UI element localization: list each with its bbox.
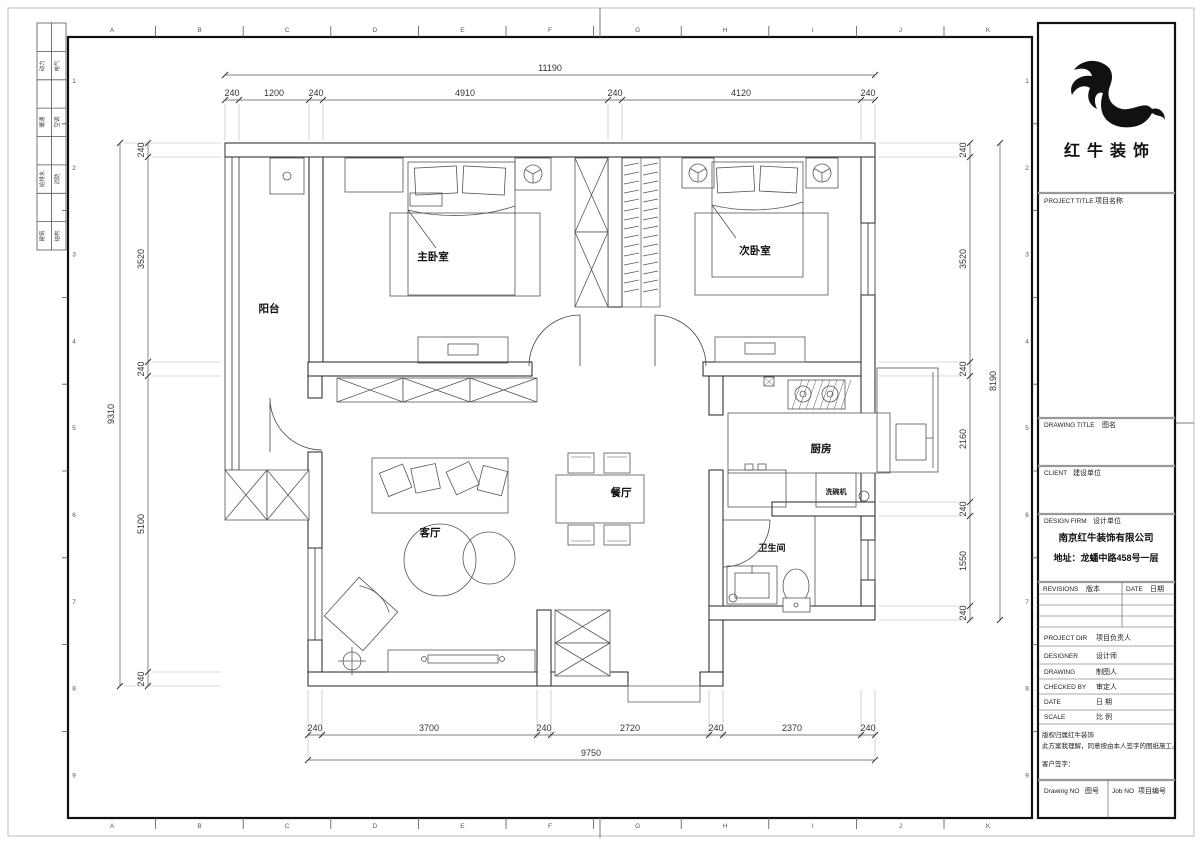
grid-label: C [285,27,290,34]
dim-label: 240 [958,501,968,516]
toilet-tank [783,598,810,612]
dim-label: 240 [308,88,323,98]
dim-label: 1550 [958,551,968,571]
scale-label: SCALE [1044,714,1066,721]
signoff-label: 电气 [53,60,61,72]
project-dir-cn: 项目负责人 [1096,633,1131,642]
dim-right-total: 8190 [988,371,998,391]
grid-label: A [110,823,115,830]
second-bedroom-label: 次卧室 [739,244,771,257]
date-row-label: DATE [1044,699,1062,706]
dim-label: 240 [136,361,146,376]
signoff-label: 动力 [38,60,46,71]
dim-label: 1200 [264,88,284,98]
drawing-title-label: DRAWING TITLE [1044,422,1095,429]
dim-label: 2160 [958,429,968,449]
project-dir-label: PROJECT DIR [1044,635,1088,642]
living-room-label: 客厅 [419,526,441,539]
dining-room-label: 餐厅 [610,486,632,499]
dim-label: 240 [958,605,968,620]
dim-label: 240 [224,88,239,98]
grid-label: 6 [1025,512,1029,519]
grid-label: 5 [1025,425,1029,432]
dim-label: 4910 [455,88,475,98]
grid-label: 8 [72,686,76,693]
grid-label: 1 [72,78,76,85]
dishwasher-label: 洗碗机 [826,487,847,496]
design-firm-cn: 设计单位 [1093,516,1121,525]
dining-table [556,475,644,523]
firm-address: 地址：龙蟠中路458号一层 [1053,552,1158,563]
checked-by-label: CHECKED BY [1044,684,1087,691]
grid-label: 2 [72,165,76,172]
checked-by-cn: 审定人 [1096,682,1117,691]
grid-label: H [723,27,728,34]
grid-label: K [986,27,991,34]
drawing-no-label: Drawing NO [1044,788,1079,795]
grid-label: 7 [72,599,76,606]
sheet-outer-border [8,8,1194,836]
dim-label: 240 [958,142,968,157]
date-label: DATE [1126,586,1144,593]
dim-label: 5100 [136,514,146,534]
grid-label: B [197,823,201,830]
grid-label: J [899,823,902,830]
signoff-label: 建筑 [38,230,46,242]
dim-label: 240 [860,723,875,733]
dim-label: 2720 [620,723,640,733]
grid-label: C [285,823,290,830]
grid-label: I [812,823,814,830]
copyright-note: 版权归属红牛装饰 [1042,730,1095,739]
title-block: 红牛装饰 PROJECT TITLE 项目名称 DRAWING TITLE 图名… [1038,23,1179,818]
dim-bottom-total: 9750 [581,748,601,758]
grid-label: 1 [1025,78,1029,85]
drawing-sheet: ABCDEFGHIJK ABCDEFGHIJK 123456789 123456… [0,0,1200,844]
grid-label: 3 [1025,252,1029,259]
dim-label: 3700 [419,723,439,733]
grid-label: J [899,27,902,34]
drawing-by-label: DRAWING [1044,669,1075,676]
floor-plan-svg: ABCDEFGHIJK ABCDEFGHIJK 123456789 123456… [0,0,1200,844]
chair [604,525,630,545]
revisions-label: REVISIONS [1043,586,1079,593]
grid-label: A [110,27,115,34]
drawing-no-cn: 图号 [1085,787,1099,795]
grid-label: 3 [72,252,76,259]
grid-label: 4 [1025,338,1029,345]
grid-label: G [635,27,640,34]
date-row-cn: 日 期 [1096,698,1112,706]
dim-label: 240 [708,723,723,733]
signoff-label: 给排水 [38,170,46,187]
designer-cn: 设计师 [1096,651,1117,660]
drawing-title-cn: 图名 [1102,420,1116,429]
kitchen-label: 厨房 [811,442,832,455]
client-label: CLIENT [1044,470,1067,477]
grid-label: E [460,27,465,34]
grid-label: 6 [72,512,76,519]
client-cn: 建设单位 [1073,468,1101,477]
revisions-cn: 版本 [1086,584,1100,593]
signoff-label: 暖通 [38,116,46,128]
drawing-by-cn: 制图人 [1096,667,1117,676]
chair [604,453,630,473]
grid-label: B [197,27,201,34]
dim-label: 240 [136,671,146,686]
grid-label: I [812,27,814,34]
master-bedroom-label: 主卧室 [417,250,449,263]
grid-label: 2 [1025,165,1029,172]
signoff-label: 消防 [53,173,61,185]
design-firm-label: DESIGN FIRM [1044,518,1087,525]
bathroom-label: 卫生间 [758,542,785,553]
signoff-label: 结构 [53,230,61,242]
dim-label: 4120 [731,88,751,98]
signoff-label: 空调 [53,116,61,128]
dim-label: 240 [136,142,146,157]
dim-label: 240 [607,88,622,98]
grid-label: D [372,823,377,830]
project-title-cn: 项目名称 [1095,196,1123,205]
designer-label: DESIGNER [1044,653,1078,660]
dim-label: 240 [958,361,968,376]
dim-label: 3520 [136,249,146,269]
grid-label: 7 [1025,599,1029,606]
dim-label: 240 [860,88,875,98]
dim-top-total: 11190 [538,63,562,73]
grid-label: D [372,27,377,34]
project-title-label: PROJECT TITLE [1044,198,1094,205]
firm-name: 南京红牛装饰有限公司 [1058,532,1153,544]
grid-label: E [460,823,465,830]
balcony-label: 阳台 [259,302,280,315]
grid-label: 8 [1025,686,1029,693]
dim-label: 240 [307,723,322,733]
signature-line: 客户签字： [1042,759,1075,768]
grid-label: 9 [1025,772,1029,779]
dim-label: 2370 [782,723,802,733]
grid-label: 9 [72,772,76,779]
grid-label: G [635,823,640,830]
dim-label: 240 [536,723,551,733]
job-no-label: Job NO [1112,788,1134,795]
grid-label: 5 [72,425,76,432]
statement-note: 此方案我理解，同意按由本人签字的图纸施工。 [1042,741,1179,750]
grid-label: 4 [72,338,76,345]
chair [568,525,594,545]
date-cn: 日期 [1150,585,1164,593]
grid-label: H [723,823,728,830]
scale-cn: 比 例 [1096,712,1112,721]
grid-label: F [548,27,552,34]
chair [568,453,594,473]
grid-label: K [986,823,991,830]
brand-name: 红牛装饰 [1064,141,1156,160]
dim-label: 3520 [958,249,968,269]
job-no-cn: 项目编号 [1138,786,1166,795]
dim-left-total: 9310 [106,404,116,424]
grid-label: F [548,823,552,830]
